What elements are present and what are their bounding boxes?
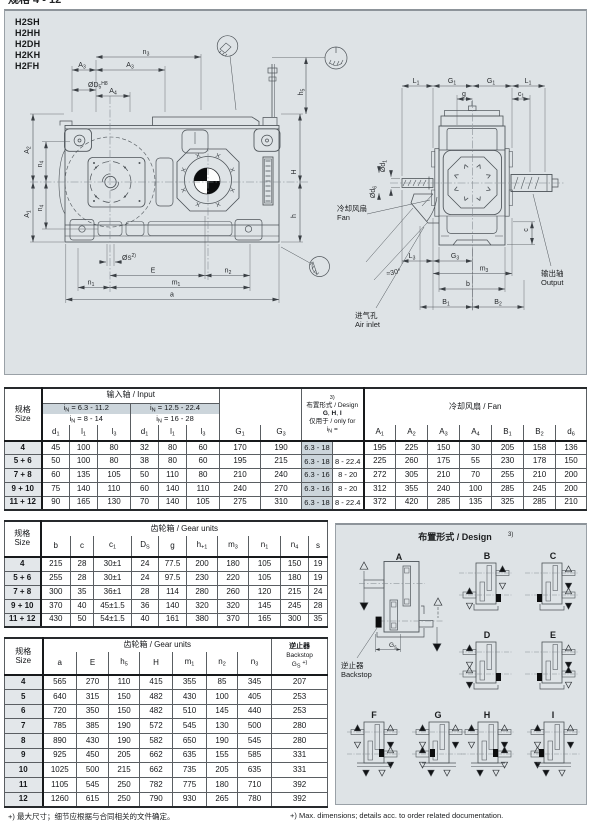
svg-text:G1: G1 xyxy=(448,78,456,87)
svg-text:F: F xyxy=(371,710,377,720)
svg-text:H: H xyxy=(484,710,491,720)
svg-text:m3: m3 xyxy=(480,266,489,275)
svg-text:Output: Output xyxy=(541,278,564,287)
svg-text:C: C xyxy=(550,551,557,561)
svg-text:c: c xyxy=(523,228,530,232)
svg-text:Air inlet: Air inlet xyxy=(355,320,381,329)
svg-text:A2: A2 xyxy=(24,146,33,154)
svg-text:A3: A3 xyxy=(78,62,86,71)
svg-text:c1: c1 xyxy=(518,91,525,100)
svg-text:n3: n3 xyxy=(143,49,150,58)
svg-text:b: b xyxy=(466,281,470,288)
svg-text:布置形式 / Design: 布置形式 / Design xyxy=(417,531,492,542)
svg-text:n1: n1 xyxy=(88,280,95,289)
svg-text:3): 3) xyxy=(508,532,513,538)
svg-text:B1: B1 xyxy=(442,299,450,308)
svg-text:h5: h5 xyxy=(298,88,307,95)
svg-text:G: G xyxy=(434,710,441,720)
svg-text:逆止器: 逆止器 xyxy=(341,660,364,670)
svg-text:n4: n4 xyxy=(37,160,46,167)
svg-text:L3: L3 xyxy=(409,253,416,262)
svg-text:G3: G3 xyxy=(451,253,459,262)
svg-text:H: H xyxy=(291,169,298,174)
svg-text:A4: A4 xyxy=(109,88,117,97)
svg-text:n2: n2 xyxy=(225,268,232,277)
svg-text:ØD5H8: ØD5H8 xyxy=(88,81,108,91)
svg-text:A3: A3 xyxy=(126,62,134,71)
svg-text:冷却风扇: 冷却风扇 xyxy=(337,203,367,213)
svg-text:I: I xyxy=(552,710,555,720)
svg-text:B2: B2 xyxy=(494,299,502,308)
svg-text:Fan: Fan xyxy=(337,213,350,222)
svg-text:E: E xyxy=(151,268,156,275)
svg-text:n4: n4 xyxy=(37,204,46,211)
svg-text:B: B xyxy=(484,551,491,561)
svg-text:g: g xyxy=(462,91,466,98)
svg-text:E: E xyxy=(550,630,556,640)
svg-text:a: a xyxy=(170,292,174,299)
svg-text:Backstop: Backstop xyxy=(341,670,372,679)
svg-text:A1: A1 xyxy=(24,210,33,218)
svg-text:A: A xyxy=(396,552,403,562)
svg-text:Ød6: Ød6 xyxy=(370,186,379,198)
svg-text:输出轴: 输出轴 xyxy=(541,268,564,278)
svg-text:进气孔: 进气孔 xyxy=(355,310,378,320)
svg-text:D: D xyxy=(484,630,491,640)
svg-text:L1: L1 xyxy=(413,78,420,87)
svg-text:m1: m1 xyxy=(172,280,181,289)
svg-text:ØS2): ØS2) xyxy=(122,253,136,262)
svg-text:Ød1: Ød1 xyxy=(380,160,389,172)
svg-text:L1: L1 xyxy=(525,78,532,87)
svg-text:h: h xyxy=(291,214,298,218)
svg-text:G1: G1 xyxy=(487,78,495,87)
